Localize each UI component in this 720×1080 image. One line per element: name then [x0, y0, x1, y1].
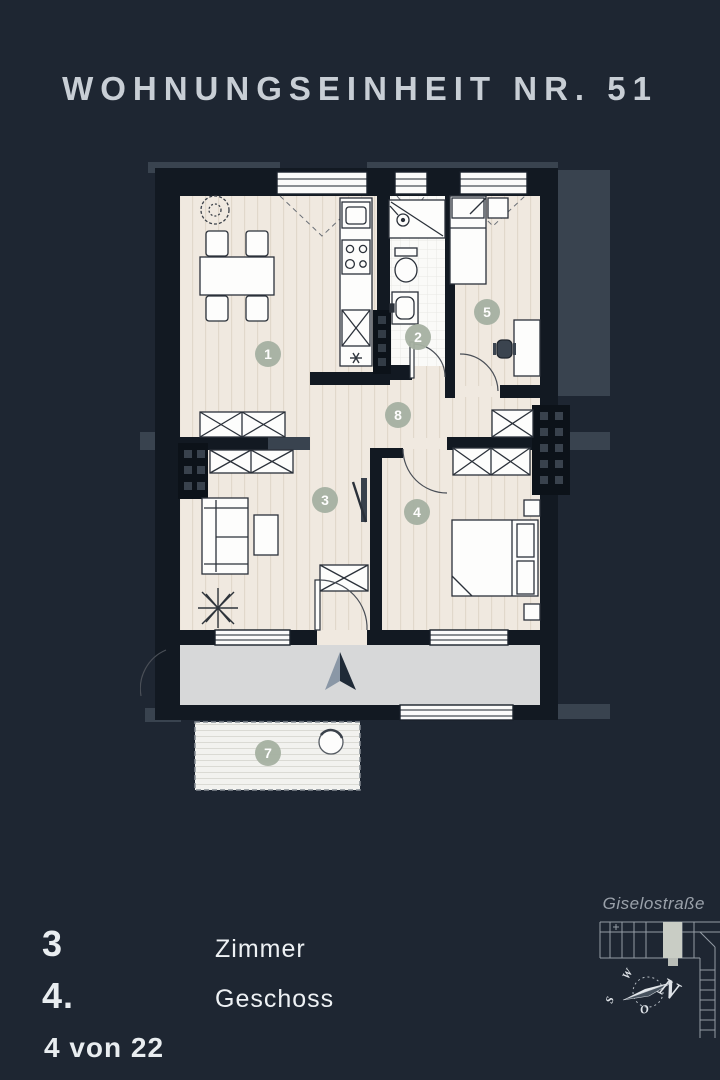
nightstand [488, 198, 508, 218]
nightstand [524, 500, 540, 516]
compass-west-label: W [620, 966, 636, 982]
compass-south-label: S [604, 995, 617, 1005]
entry-door-leaf [315, 580, 320, 630]
wardrobe [453, 448, 530, 475]
compass-east-label: O [639, 1001, 651, 1017]
room-label-2: 2 [405, 324, 431, 350]
compass-north-label: N [653, 971, 685, 1006]
double-bed [452, 520, 538, 596]
floor-plan [140, 160, 610, 820]
wardrobe [200, 412, 285, 437]
unit-stub [668, 958, 678, 966]
site-plan: N W S O [595, 900, 720, 1040]
shower [389, 200, 445, 238]
desk [514, 320, 540, 376]
room-label-3: 3 [312, 487, 338, 513]
bathroom-sink [390, 292, 418, 324]
wall-light-segment [268, 437, 310, 450]
page-title: WOHNUNGSEINHEIT NR. 51 [0, 70, 720, 108]
floor-number-value: 4. [42, 978, 74, 1014]
chair [206, 296, 228, 321]
floor-plant [198, 588, 238, 628]
wardrobe [492, 410, 533, 437]
sofa [202, 498, 248, 574]
chair [246, 296, 268, 321]
side-table [254, 515, 278, 555]
chair [246, 231, 268, 256]
floor-number-label: Geschoss [215, 986, 334, 1012]
room-label-4: 4 [404, 499, 430, 525]
wardrobe [210, 450, 293, 473]
rooms-count-label: Zimmer [215, 936, 306, 962]
kitchen-counter [340, 198, 372, 366]
room-label-5: 5 [474, 299, 500, 325]
toilet [395, 248, 417, 282]
nightstand [524, 604, 540, 620]
unit-position-text: 4 von 22 [44, 1032, 164, 1064]
rooms-count-value: 3 [42, 926, 63, 962]
chair [206, 231, 228, 256]
compass: N W S O [604, 966, 686, 1017]
building-outline [600, 922, 720, 1038]
dining-table [200, 257, 274, 295]
single-bed [450, 196, 486, 284]
room-label-8: 8 [385, 402, 411, 428]
highlighted-unit [663, 922, 682, 958]
walkway-floor [180, 645, 540, 705]
room-label-7: 7 [255, 740, 281, 766]
room-label-1: 1 [255, 341, 281, 367]
